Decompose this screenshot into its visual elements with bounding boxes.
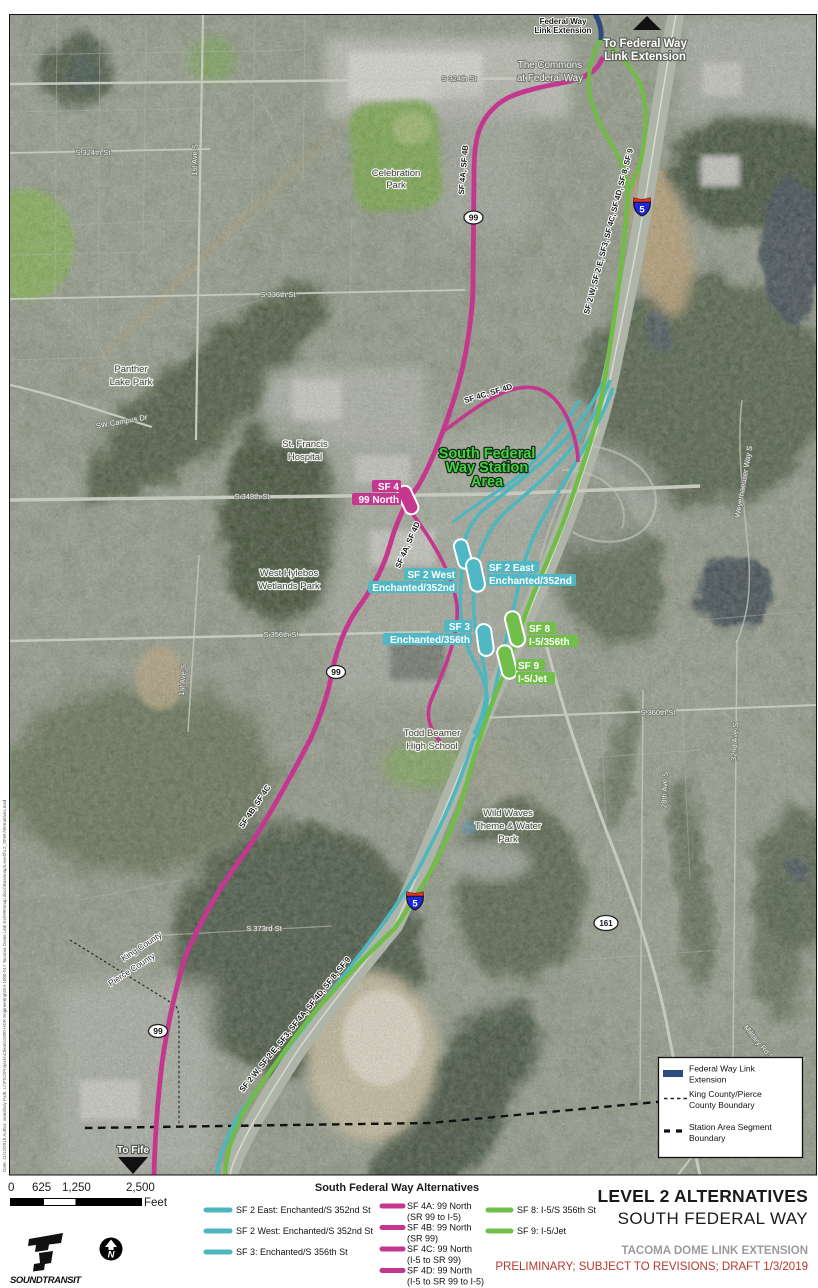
- svg-text:SF 2 East: Enchanted/S 352nd S: SF 2 East: Enchanted/S 352nd St: [236, 1205, 371, 1215]
- svg-text:N: N: [108, 1250, 116, 1261]
- svg-text:Extension: Extension: [689, 1075, 727, 1085]
- svg-text:Date: 11/12/2018 Author: wan: Date: 11/12/2018 Author: wanshuly Path: …: [2, 799, 7, 1172]
- svg-text:Celebration: Celebration: [372, 168, 421, 179]
- svg-text:S 324th St: S 324th St: [75, 148, 111, 157]
- svg-text:I-5/Jet: I-5/Jet: [518, 674, 548, 685]
- svg-text:99: 99: [469, 213, 479, 223]
- svg-text:5: 5: [412, 898, 418, 909]
- svg-text:SF 2 West: Enchanted/S 352nd S: SF 2 West: Enchanted/S 352nd St: [236, 1226, 373, 1236]
- svg-text:SOUNDTRANSIT: SOUNDTRANSIT: [10, 1275, 82, 1286]
- svg-text:Area: Area: [471, 474, 504, 490]
- svg-text:High School: High School: [406, 741, 457, 752]
- svg-text:Federal Way Link: Federal Way Link: [689, 1064, 756, 1074]
- svg-text:To Federal Way: To Federal Way: [603, 38, 687, 50]
- svg-text:1st Ave S: 1st Ave S: [189, 144, 199, 176]
- svg-text:Wetlands Park: Wetlands Park: [258, 581, 320, 592]
- svg-text:Panther: Panther: [114, 364, 147, 375]
- svg-text:Link Extension: Link Extension: [604, 51, 686, 63]
- svg-text:To Fife: To Fife: [117, 1145, 149, 1156]
- svg-text:County Boundary: County Boundary: [689, 1100, 755, 1110]
- svg-text:Enchanted/352nd: Enchanted/352nd: [372, 583, 455, 594]
- svg-text:S 348th St: S 348th St: [234, 492, 270, 501]
- svg-text:King County/Pierce: King County/Pierce: [689, 1089, 762, 1099]
- svg-text:99: 99: [153, 1026, 163, 1036]
- svg-text:Park: Park: [498, 834, 518, 845]
- svg-text:Park: Park: [386, 180, 406, 191]
- svg-text:99 North: 99 North: [358, 495, 399, 506]
- svg-text:S 360th St: S 360th St: [640, 708, 676, 717]
- svg-text:SF 9: SF 9: [518, 661, 540, 672]
- svg-text:Station Area Segment: Station Area Segment: [689, 1122, 772, 1132]
- svg-text:SF 3: Enchanted/S 356th St: SF 3: Enchanted/S 356th St: [236, 1247, 348, 1257]
- svg-text:St. Francis: St. Francis: [282, 439, 328, 450]
- svg-text:SF 2 East: SF 2 East: [489, 563, 535, 574]
- svg-text:Hospital: Hospital: [288, 452, 322, 463]
- svg-text:Todd Beamer: Todd Beamer: [404, 728, 461, 739]
- svg-text:5: 5: [639, 204, 645, 215]
- svg-text:SF 2 West: SF 2 West: [407, 570, 455, 581]
- svg-text:Wild Waves: Wild Waves: [483, 808, 533, 819]
- svg-text:West Hylebos: West Hylebos: [260, 568, 319, 579]
- svg-text:Link Extension: Link Extension: [535, 26, 592, 35]
- svg-text:The Commons: The Commons: [518, 60, 582, 71]
- svg-text:99: 99: [331, 667, 341, 677]
- svg-text:S 356th St: S 356th St: [263, 630, 299, 639]
- svg-text:at Federal Way: at Federal Way: [517, 73, 583, 84]
- svg-text:Lake Park: Lake Park: [110, 377, 153, 388]
- svg-text:Boundary: Boundary: [689, 1133, 726, 1143]
- svg-text:S 324th St: S 324th St: [441, 74, 477, 83]
- svg-text:SF 3: SF 3: [449, 622, 471, 633]
- svg-text:S 373rd St: S 373rd St: [246, 924, 282, 933]
- svg-text:(I-5 to SR 99 to I-5): (I-5 to SR 99 to I-5): [407, 1277, 484, 1287]
- svg-text:SF 4: SF 4: [378, 482, 400, 493]
- svg-text:I-5/356th: I-5/356th: [529, 637, 570, 648]
- svg-text:Enchanted/352nd: Enchanted/352nd: [489, 576, 572, 587]
- svg-text:SF 8: SF 8: [529, 624, 551, 635]
- svg-text:Federal Way: Federal Way: [540, 17, 587, 26]
- svg-text:Theme & Water: Theme & Water: [475, 821, 541, 832]
- svg-text:28th Ave S: 28th Ave S: [659, 772, 669, 808]
- svg-text:S 336th St: S 336th St: [260, 290, 296, 299]
- svg-text:161: 161: [599, 919, 613, 928]
- svg-text:Enchanted/356th: Enchanted/356th: [390, 635, 470, 646]
- svg-text:(SR 99): (SR 99): [407, 1234, 438, 1244]
